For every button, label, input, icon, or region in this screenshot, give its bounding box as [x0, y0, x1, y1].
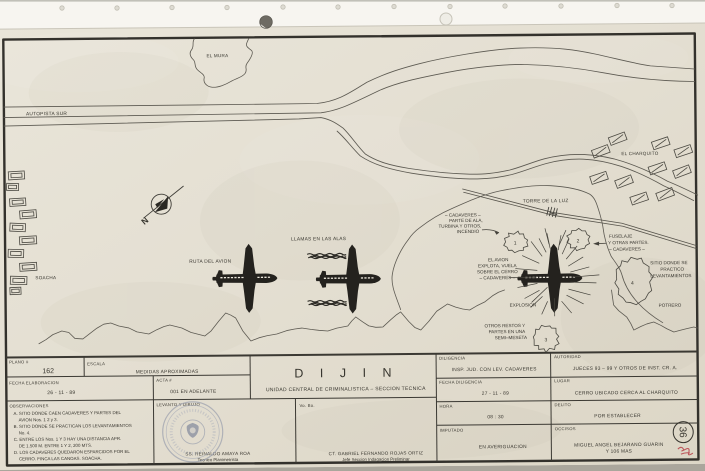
svg-text:4: 4 — [631, 281, 634, 287]
svg-text:OTROS RESTOS Y: OTROS RESTOS Y — [484, 323, 525, 328]
svg-text:LEVANTO Y DIBUJO: LEVANTO Y DIBUJO — [156, 402, 200, 407]
svg-text:POR ESTABLECER: POR ESTABLECER — [594, 413, 641, 419]
svg-text:– CADAVERES –: – CADAVERES – — [445, 212, 481, 217]
svg-text:FECHA DILIGENCIA: FECHA DILIGENCIA — [439, 379, 482, 384]
svg-text:SEMI–MESETA: SEMI–MESETA — [495, 335, 528, 340]
svg-text:Y OTRAS PARTES.: Y OTRAS PARTES. — [608, 240, 649, 245]
svg-text:TORRE DE LA LUZ: TORRE DE LA LUZ — [523, 198, 569, 204]
svg-text:CERRO UBICADO CERCA AL CHARQUI: CERRO UBICADO CERCA AL CHARQUITO — [575, 390, 678, 397]
svg-text:DE 1.500 M. ENTRE 1 Y 2, 200 M: DE 1.500 M. ENTRE 1 Y 2, 200 MTS. — [19, 443, 92, 449]
svg-text:ESCALA: ESCALA — [87, 361, 105, 366]
svg-text:INCENDIO: INCENDIO — [457, 229, 480, 234]
svg-text:AUTOPISTA SUR: AUTOPISTA SUR — [26, 111, 68, 117]
svg-text:08 : 30: 08 : 30 — [487, 414, 504, 420]
svg-text:– CADAVERES –: – CADAVERES – — [609, 246, 645, 251]
svg-text:LLAMAS EN LAS ALAS: LLAMAS EN LAS ALAS — [291, 236, 346, 242]
svg-text:EXPLOTA, VUELA: EXPLOTA, VUELA — [478, 263, 517, 268]
svg-text:EL CHARQUITO: EL CHARQUITO — [621, 151, 658, 156]
svg-text:– CADAVERES –: – CADAVERES – — [480, 275, 516, 280]
svg-text:SOACHA: SOACHA — [35, 275, 57, 280]
svg-text:HORA: HORA — [439, 404, 452, 409]
svg-text:C. ENTRE LOS Nos. 1 Y 3 HAY UN: C. ENTRE LOS Nos. 1 Y 3 HAY UNA DISTANCI… — [14, 436, 121, 442]
svg-text:ACTA #: ACTA # — [156, 378, 172, 383]
svg-text:AVION Nos. 1 2 y 3.: AVION Nos. 1 2 y 3. — [19, 417, 58, 422]
svg-text:A. SITIO DONDE CAEN CADAVERES: A. SITIO DONDE CAEN CADAVERES Y PARTES D… — [14, 410, 122, 416]
svg-text:3: 3 — [545, 337, 548, 343]
svg-text:No. 4.: No. 4. — [19, 430, 31, 435]
svg-text:D I J I N: D I J I N — [294, 366, 398, 381]
svg-text:PARTES EN UNA: PARTES EN UNA — [489, 329, 527, 334]
svg-text:EL AVION: EL AVION — [488, 257, 508, 262]
svg-text:TURBINA Y OTROS,: TURBINA Y OTROS, — [438, 223, 481, 228]
svg-text:DILIGENCIA: DILIGENCIA — [439, 356, 465, 361]
svg-text:OCCISOS: OCCISOS — [555, 426, 576, 431]
svg-text:MEDIDAS APROXIMADAS: MEDIDAS APROXIMADAS — [136, 369, 199, 376]
svg-text:FUSELAJE: FUSELAJE — [609, 234, 632, 239]
svg-text:AUTORIDAD: AUTORIDAD — [554, 354, 581, 359]
svg-text:RUTA DEL AVION: RUTA DEL AVION — [189, 259, 231, 265]
svg-text:DELITO: DELITO — [554, 402, 571, 407]
svg-text:D. LOS CADAVERES QUEDARON ESPA: D. LOS CADAVERES QUEDARON ESPARCIDOS POR… — [14, 449, 131, 455]
svg-text:EL MURA: EL MURA — [206, 53, 229, 58]
svg-text:Y 106 MAS: Y 106 MAS — [606, 449, 632, 455]
svg-text:001 EN ADELANTE: 001 EN ADELANTE — [170, 389, 216, 395]
svg-text:1: 1 — [514, 241, 517, 247]
svg-text:SOBRE EL CERRO: SOBRE EL CERRO — [477, 269, 518, 274]
svg-text:B. SITIO DONDE SE PRACTICAN LO: B. SITIO DONDE SE PRACTICAN LOS LEVANTAM… — [14, 423, 132, 429]
svg-text:26 - 11 - 89: 26 - 11 - 89 — [47, 390, 75, 396]
svg-text:CERRO. FINCA LAS CANOAS. SOAC: CERRO. FINCA LAS CANOAS. SOACHA. — [19, 456, 102, 462]
svg-text:JUECES 93 – 99 Y OTROS DE INST: JUECES 93 – 99 Y OTROS DE INST. CR. A. — [573, 365, 678, 372]
svg-text:POTRERO: POTRERO — [659, 303, 682, 308]
svg-text:PARTE DE ALA,: PARTE DE ALA, — [449, 218, 483, 223]
svg-text:IMPUTADO: IMPUTADO — [440, 428, 464, 433]
svg-text:36: 36 — [677, 427, 688, 439]
svg-text:INSP. JUD. CON LEV. CADAVERES: INSP. JUD. CON LEV. CADAVERES — [452, 366, 537, 373]
svg-text:Jefe Seccion Indagacion Prelim: Jefe Seccion Indagacion Preliminar — [342, 457, 410, 463]
svg-text:MIGUEL ANGEL BEJARANO GUARIN: MIGUEL ANGEL BEJARANO GUARIN — [574, 442, 664, 449]
svg-text:LEVANTAMIENTOS: LEVANTAMIENTOS — [650, 273, 691, 278]
svg-text:CT. GABRIEL FERNANDO ROJAS ORT: CT. GABRIEL FERNANDO ROJAS ORTIZ — [329, 450, 424, 456]
svg-text:PRACTICO: PRACTICO — [660, 267, 684, 272]
svg-text:2: 2 — [577, 239, 580, 245]
svg-text:SITIO DONDE SE: SITIO DONDE SE — [650, 260, 687, 265]
svg-text:Vo. Bo.: Vo. Bo. — [299, 403, 314, 408]
svg-text:EXPLOSION: EXPLOSION — [510, 302, 537, 307]
svg-text:162: 162 — [42, 368, 54, 375]
svg-text:FECHA ELABORACION: FECHA ELABORACION — [9, 380, 59, 385]
svg-text:LUGAR: LUGAR — [554, 378, 570, 383]
svg-text:OBSERVACIONES: OBSERVACIONES — [9, 403, 48, 408]
svg-text:27 - 11 - 89: 27 - 11 - 89 — [482, 391, 509, 397]
svg-text:EN AVERIGUACION: EN AVERIGUACION — [479, 444, 527, 450]
svg-text:PLANO #: PLANO # — [9, 359, 29, 364]
